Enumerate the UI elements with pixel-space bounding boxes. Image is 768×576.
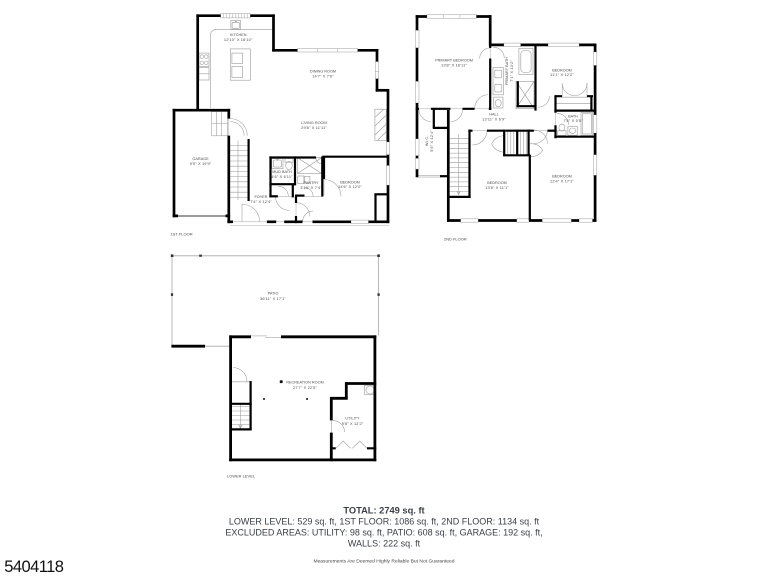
svg-text:5404118: 5404118 [4, 558, 64, 576]
svg-text:5'8" X 12'4": 5'8" X 12'4" [429, 130, 434, 152]
svg-text:EXCLUDED AREAS: UTILITY: 98 sq: EXCLUDED AREAS: UTILITY: 98 sq. ft, PATI… [225, 528, 542, 538]
svg-text:13'8" X 16'11": 13'8" X 16'11" [441, 63, 467, 68]
svg-text:RECREATION ROOM: RECREATION ROOM [286, 381, 323, 385]
svg-text:12'4" X 17'1": 12'4" X 17'1" [550, 179, 574, 184]
svg-text:3'10" X 7'4": 3'10" X 7'4" [300, 185, 322, 190]
svg-text:13'11" X 6'9": 13'11" X 6'9" [482, 116, 506, 121]
svg-text:LOWER LEVEL: 529 sq. ft, 1ST F: LOWER LEVEL: 529 sq. ft, 1ST FLOOR: 1086… [229, 517, 540, 527]
svg-text:14'7" X 7'6": 14'7" X 7'6" [312, 74, 334, 79]
svg-text:9'9" X 19'9": 9'9" X 19'9" [190, 161, 212, 166]
svg-text:1ST FLOOR: 1ST FLOOR [170, 231, 192, 236]
svg-text:TOTAL: 2749 sq. ft: TOTAL: 2749 sq. ft [343, 505, 424, 515]
svg-text:LOWER LEVEL: LOWER LEVEL [227, 474, 256, 479]
svg-text:WALLS: 222 sq. ft: WALLS: 222 sq. ft [348, 539, 421, 549]
svg-text:36'11" X 17'1": 36'11" X 17'1" [260, 296, 286, 301]
svg-text:13'6" X 11'1": 13'6" X 11'1" [485, 185, 509, 190]
svg-text:7'4" X 12'4": 7'4" X 12'4" [250, 199, 272, 204]
svg-text:14'6" X 12'0": 14'6" X 12'0" [338, 184, 362, 189]
svg-text:2ND FLOOR: 2ND FLOOR [444, 237, 467, 242]
svg-text:7'1" X 13'2": 7'1" X 13'2" [509, 60, 514, 82]
svg-text:11'1" X 12'2": 11'1" X 12'2" [550, 72, 574, 77]
svg-text:12'10" X 16'10": 12'10" X 16'10" [224, 37, 253, 42]
svg-text:Measurements Are Deemed Highly: Measurements Are Deemed Highly Reliable … [313, 558, 454, 564]
svg-text:4'6" X 6'11": 4'6" X 6'11" [271, 174, 293, 179]
svg-text:27'7" X 22'5": 27'7" X 22'5" [293, 385, 317, 390]
svg-text:PATIO: PATIO [268, 292, 279, 296]
svg-text:7'5" X 5'5": 7'5" X 5'5" [563, 118, 583, 123]
svg-text:9'8" X 12'2": 9'8" X 12'2" [342, 421, 364, 426]
svg-text:29'8" X 11'11": 29'8" X 11'11" [301, 125, 327, 130]
